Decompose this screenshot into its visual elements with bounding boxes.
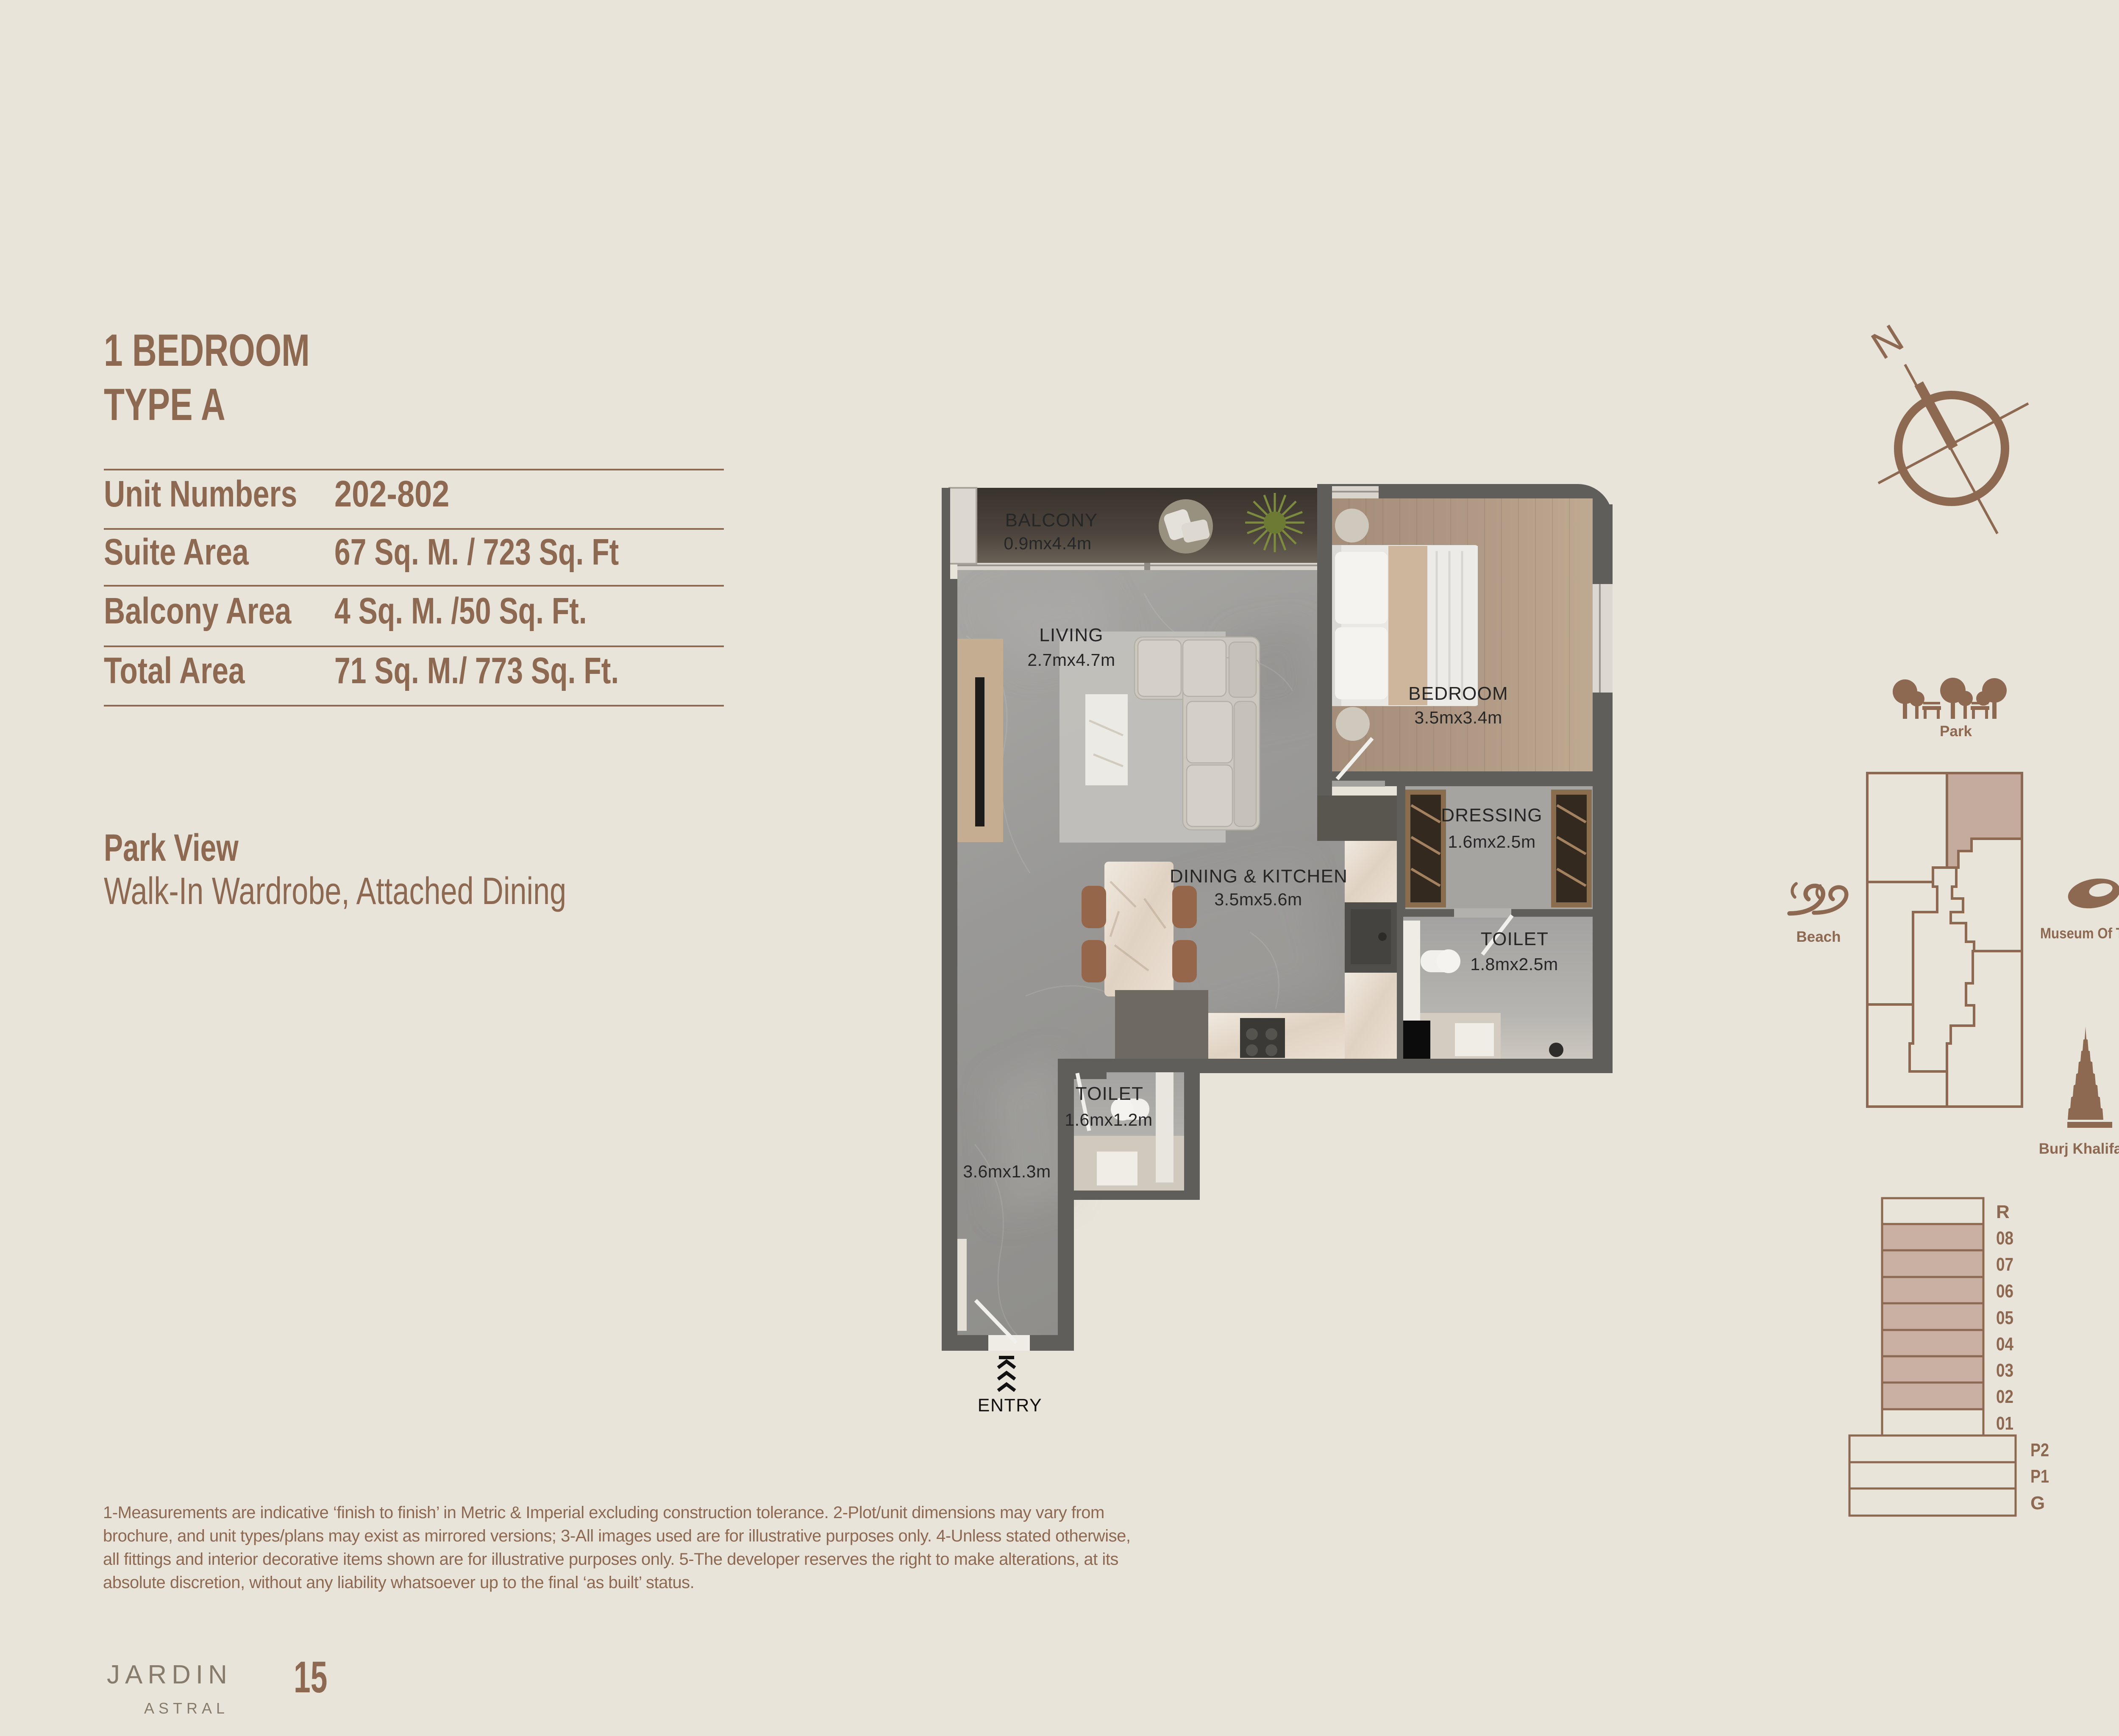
svg-text:P1: P1 [2030,1466,2049,1487]
svg-text:DINING & KITCHEN: DINING & KITCHEN [1170,866,1348,887]
svg-text:ENTRY: ENTRY [978,1395,1042,1416]
svg-text:G: G [2030,1493,2045,1513]
svg-text:05: 05 [1996,1308,2013,1328]
svg-text:Beach: Beach [1796,929,1841,945]
svg-text:1.8mx2.5m: 1.8mx2.5m [1470,954,1558,974]
svg-text:Museum Of The Future: Museum Of The Future [2040,925,2119,942]
svg-text:06: 06 [1996,1281,2013,1302]
svg-text:1.6mx2.5m: 1.6mx2.5m [1448,832,1535,851]
svg-text:TOILET: TOILET [1481,929,1549,949]
svg-text:3.6mx1.3m: 3.6mx1.3m [963,1162,1051,1181]
svg-text:P2: P2 [2030,1440,2049,1461]
svg-text:DRESSING: DRESSING [1441,805,1542,826]
svg-text:01: 01 [1996,1413,2013,1434]
svg-text:1.6mx1.2m: 1.6mx1.2m [1065,1110,1152,1130]
svg-text:BALCONY: BALCONY [1005,510,1098,531]
svg-text:LIVING: LIVING [1039,625,1103,645]
svg-text:N: N [1864,316,1910,368]
svg-text:TOILET: TOILET [1076,1083,1143,1104]
svg-text:0.9mx4.4m: 0.9mx4.4m [1004,534,1091,553]
svg-text:Burj Khalifa: Burj Khalifa [2039,1141,2119,1157]
svg-text:03: 03 [1996,1360,2013,1381]
svg-text:R: R [1996,1202,2010,1222]
svg-text:02: 02 [1996,1386,2013,1407]
svg-text:08: 08 [1996,1228,2013,1249]
svg-text:3.5mx3.4m: 3.5mx3.4m [1414,708,1502,727]
svg-text:07: 07 [1996,1254,2013,1275]
svg-text:2.7mx4.7m: 2.7mx4.7m [1027,650,1115,670]
svg-text:BEDROOM: BEDROOM [1408,683,1508,704]
svg-text:3.5mx5.6m: 3.5mx5.6m [1214,890,1302,909]
svg-text:04: 04 [1996,1334,2013,1355]
svg-text:Park: Park [1940,723,1972,740]
